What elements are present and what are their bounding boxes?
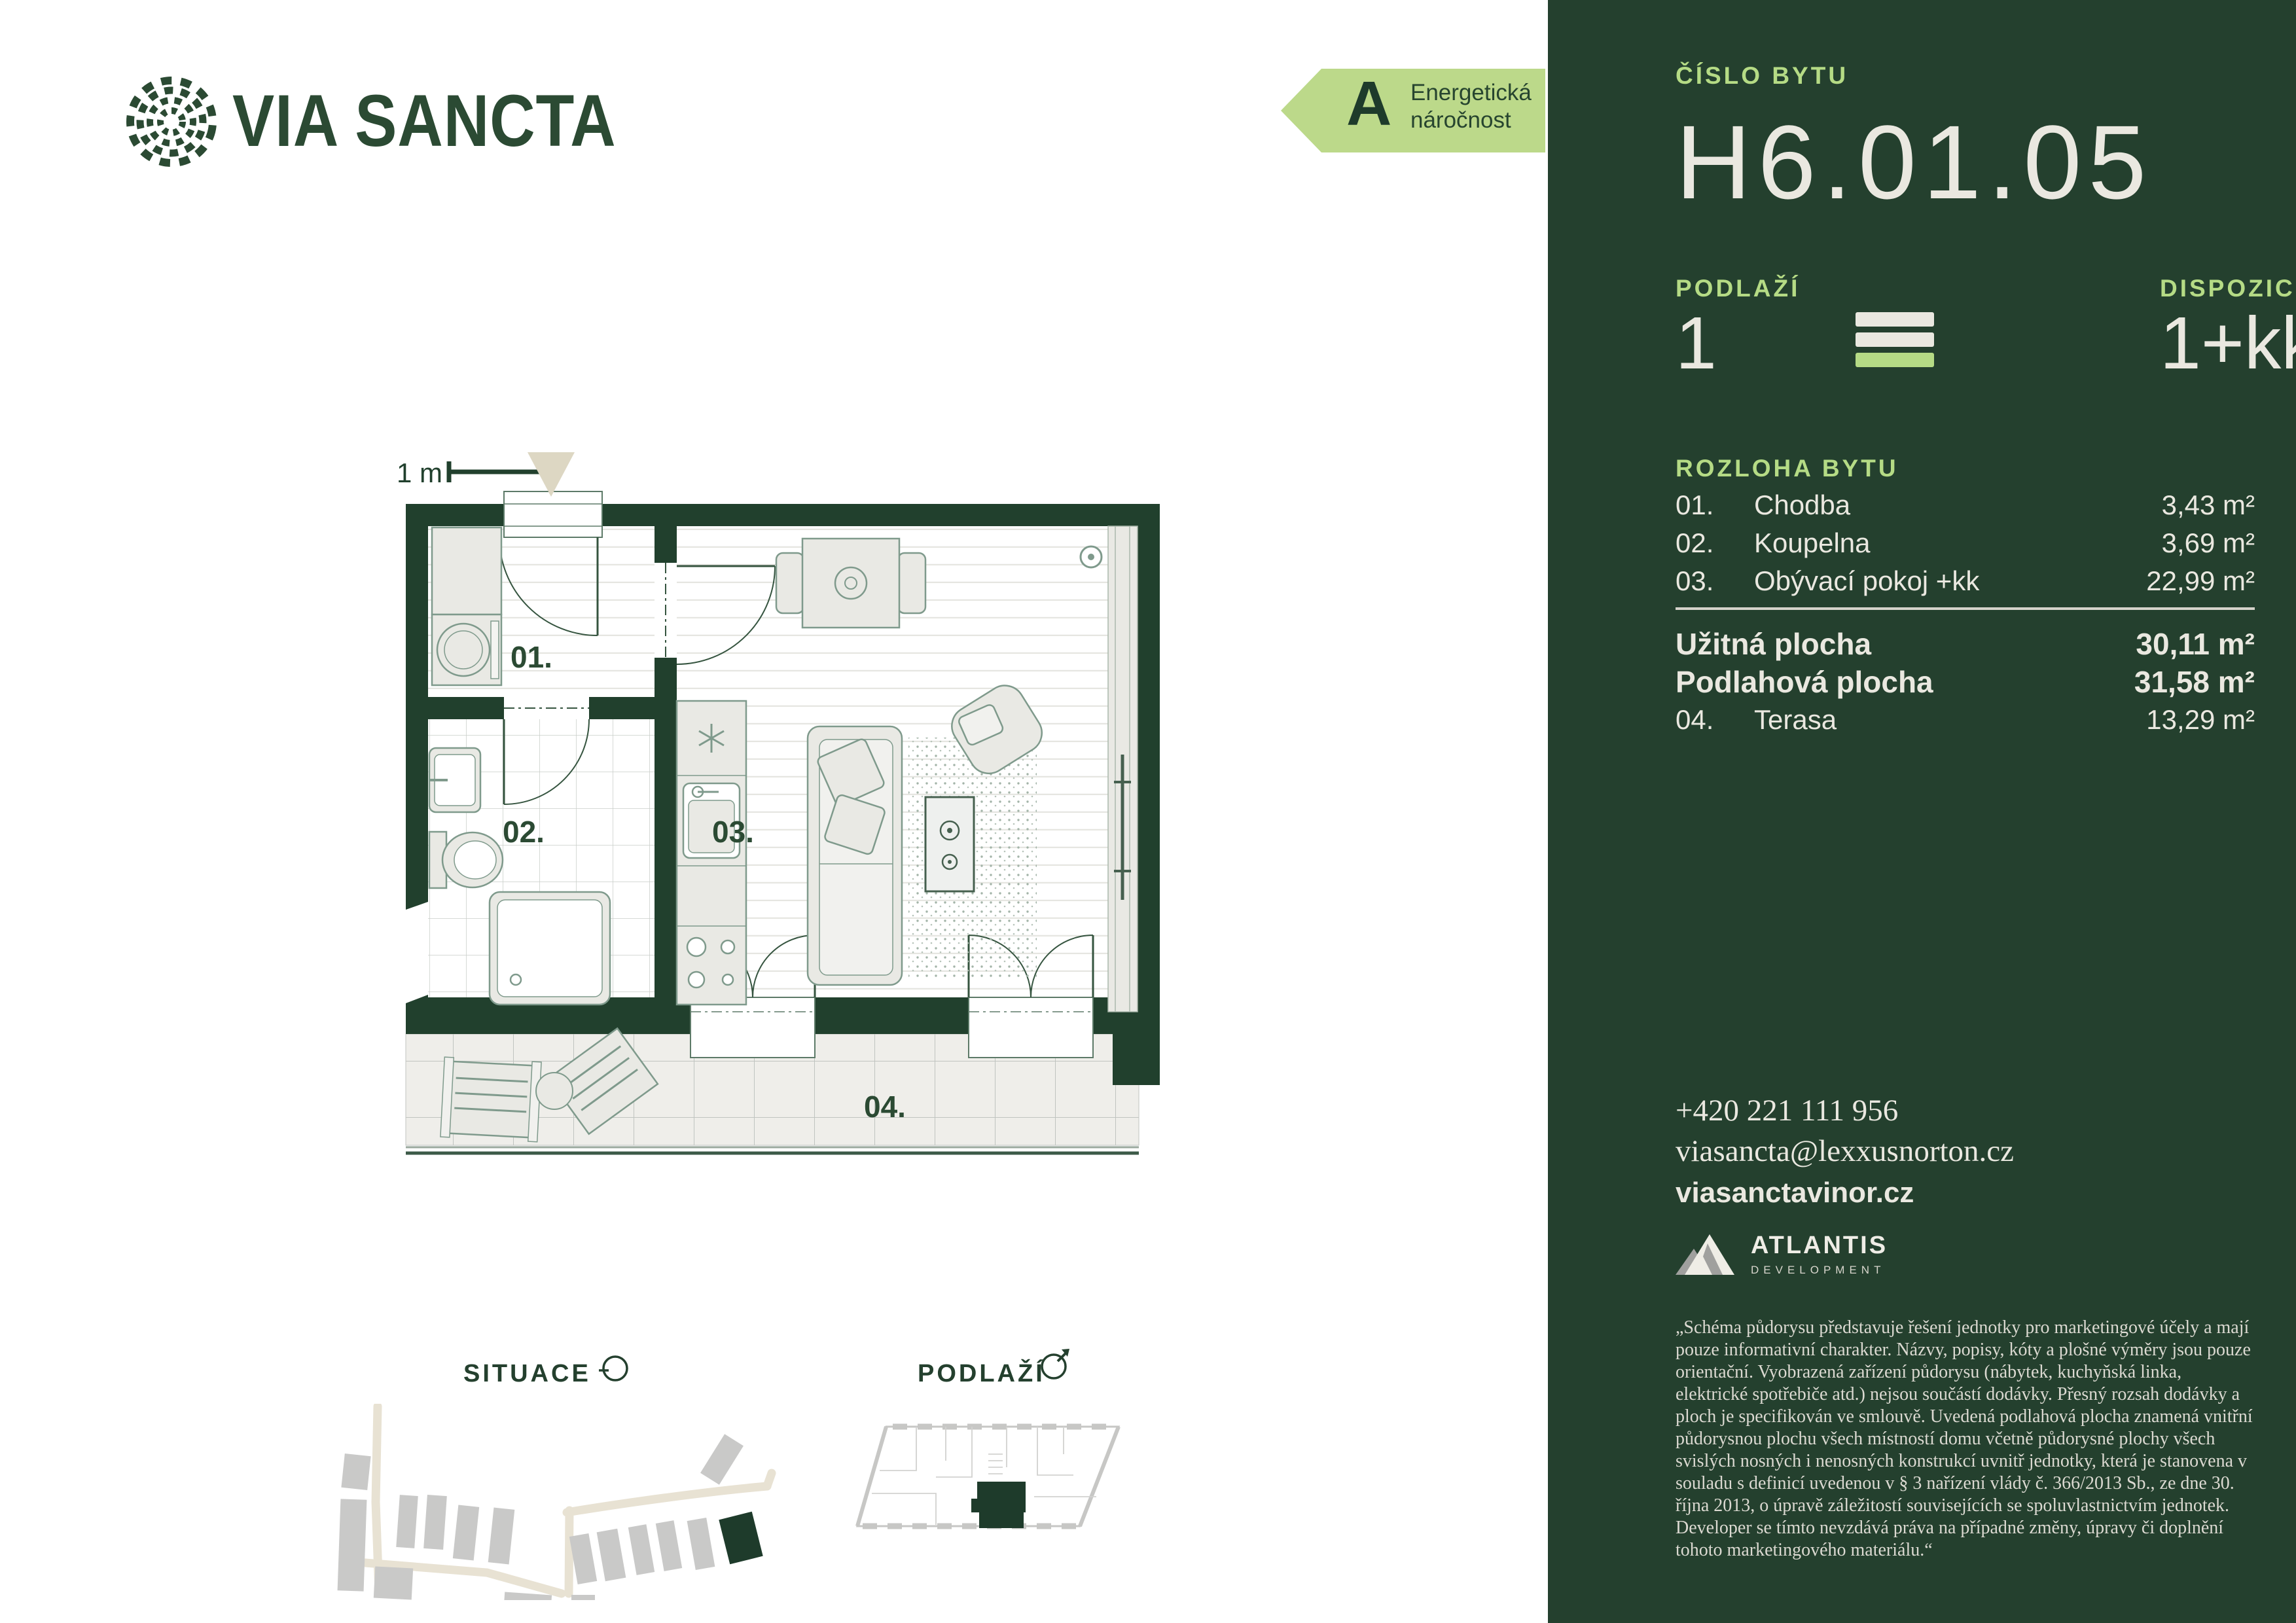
window-wall: [1108, 526, 1138, 1012]
usable-area-label: Užitná plocha: [1676, 627, 2136, 661]
site-buildings: [338, 1434, 744, 1600]
room-label-02: 02.: [503, 815, 545, 849]
room-label-03: 03.: [712, 815, 754, 849]
scale-bar: 1 m: [397, 457, 542, 488]
energy-label-line1: Energetická: [1410, 79, 1532, 107]
shower: [490, 892, 610, 1005]
unit-number: H6.01.05: [1676, 110, 2255, 215]
usable-area-value: 30,11 m²: [2136, 627, 2255, 661]
energy-badge: A Energetická náročnost: [1281, 69, 1545, 152]
developer-division: DEVELOPMENT: [1751, 1264, 1888, 1277]
room-row-number: 01.: [1676, 490, 1754, 521]
floor-label: PODLAŽÍ: [1676, 275, 2029, 302]
room-row: 03. Obývací pokoj +kk 22,99 m²: [1676, 565, 2255, 597]
podlazi-diagram-title: PODLAŽÍ: [918, 1360, 1045, 1388]
room-row: 02. Koupelna 3,69 m²: [1676, 527, 2255, 559]
area-divider: [1676, 607, 2255, 610]
terrace-row: 04. Terasa 13,29 m²: [1676, 704, 2255, 736]
legal-disclaimer: „Schéma půdorysu představuje řešení jedn…: [1676, 1317, 2255, 1561]
brand-logo: VIA SANCTA: [124, 73, 648, 171]
room-label-01: 01.: [511, 640, 552, 674]
floor-diagram: [838, 1415, 1145, 1611]
floor-plan: 01. 02. 03. 04. 1 m: [393, 442, 1165, 1162]
room-row-area: 3,69 m²: [2162, 527, 2255, 559]
room-row-name: Chodba: [1754, 490, 2162, 521]
usable-area-row: Užitná plocha 30,11 m²: [1676, 627, 2255, 661]
gross-area-row: Podlahová plocha 31,58 m²: [1676, 665, 2255, 699]
kitchen-counter: [677, 701, 746, 1005]
room-row-area: 22,99 m²: [2146, 565, 2255, 597]
terrace-row-number: 04.: [1676, 704, 1754, 736]
bathroom-sink: [429, 748, 480, 812]
area-section-label: ROZLOHA BYTU: [1676, 455, 2255, 482]
website-link[interactable]: viasanctavinor.cz: [1676, 1177, 2255, 1209]
podlazi-compass-icon: [1037, 1348, 1071, 1382]
ceiling-light-icon: [1081, 546, 1102, 567]
terrace-row-area: 13,29 m²: [2146, 704, 2255, 736]
brand-wordmark: VIA SANCTA: [232, 79, 617, 163]
washing-machine: [432, 615, 501, 685]
room-label-04: 04.: [864, 1090, 906, 1124]
site-map: [314, 1404, 825, 1600]
floor-level-icon: [1856, 312, 1934, 373]
developer-name: ATLANTIS: [1751, 1233, 1888, 1258]
energy-label: Energetická náročnost: [1410, 79, 1532, 134]
floor-highlighted-unit: [971, 1482, 1026, 1528]
room-row: 01. Chodba 3,43 m²: [1676, 490, 2255, 521]
situace-compass-icon: [599, 1353, 629, 1383]
unit-number-label: ČÍSLO BYTU: [1676, 62, 2255, 90]
toilet: [429, 832, 503, 888]
layout-label: DISPOZICE: [2160, 275, 2296, 302]
wall-niche: [406, 902, 428, 1003]
sofa: [808, 726, 902, 985]
gross-area-value: 31,58 m²: [2134, 665, 2255, 699]
room-row-number: 02.: [1676, 527, 1754, 559]
room-row-name: Obývací pokoj +kk: [1754, 565, 2146, 597]
plan-sheet: VIA SANCTA A Energetická náročnost: [0, 0, 2296, 1623]
room-row-name: Koupelna: [1754, 527, 2162, 559]
gross-area-label: Podlahová plocha: [1676, 665, 2134, 699]
entrance-marker-icon: [528, 452, 575, 497]
energy-label-line2: náročnost: [1410, 107, 1532, 134]
floor-value: 1: [1676, 306, 1806, 380]
email-link[interactable]: viasancta@lexxusnorton.cz: [1676, 1135, 2255, 1169]
situace-title: SITUACE: [463, 1360, 591, 1388]
layout-value: 1+kk: [2160, 306, 2296, 380]
energy-grade: A: [1346, 73, 1391, 135]
unit-info-panel: ČÍSLO BYTU H6.01.05 PODLAŽÍ DISPOZICE 1 …: [1548, 0, 2296, 1623]
mountain-icon: [1676, 1234, 1741, 1275]
scale-label: 1 m: [397, 457, 442, 488]
developer-logo: ATLANTIS DEVELOPMENT: [1676, 1232, 2255, 1277]
contact-phone: +420 221 111 956: [1676, 1094, 2255, 1128]
brand-spiral-icon: [124, 73, 219, 168]
room-row-number: 03.: [1676, 565, 1754, 597]
tv-cabinet: [925, 797, 974, 891]
site-highlighted-building: [719, 1512, 762, 1565]
hall-cabinet: [432, 527, 501, 615]
room-row-area: 3,43 m²: [2162, 490, 2255, 521]
terrace-row-name: Terasa: [1754, 704, 2146, 736]
